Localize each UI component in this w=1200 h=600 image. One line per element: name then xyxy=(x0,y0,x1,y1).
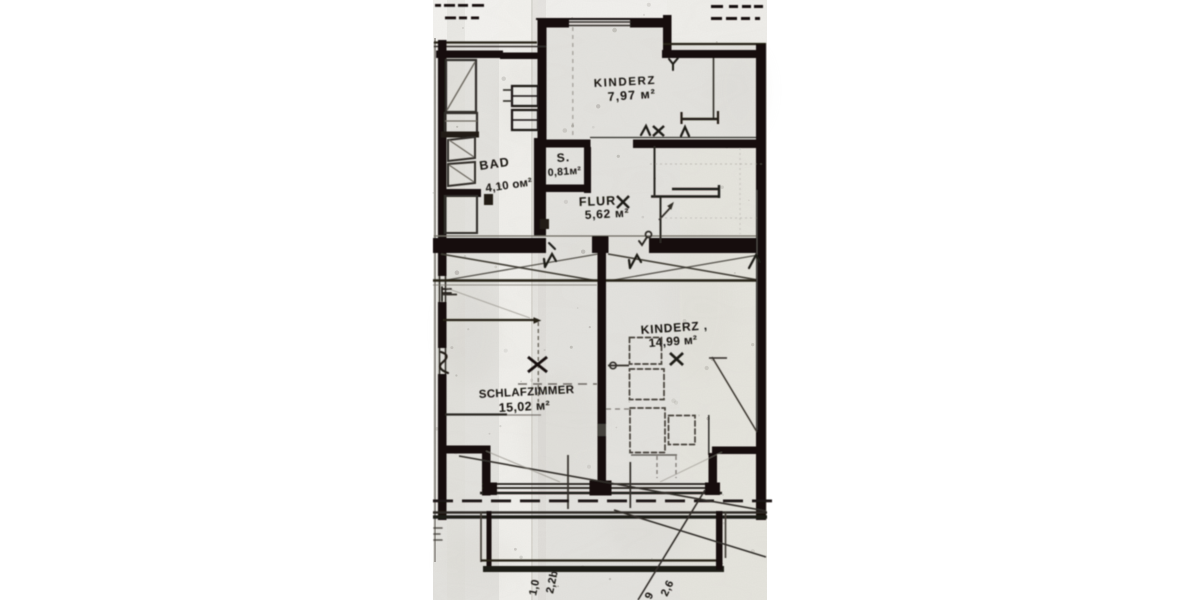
svg-text:0,81м²: 0,81м² xyxy=(547,165,581,179)
svg-text:S.: S. xyxy=(556,150,570,165)
svg-text:5,62 м²: 5,62 м² xyxy=(584,206,629,222)
svg-text:15,02 м²: 15,02 м² xyxy=(498,398,550,415)
